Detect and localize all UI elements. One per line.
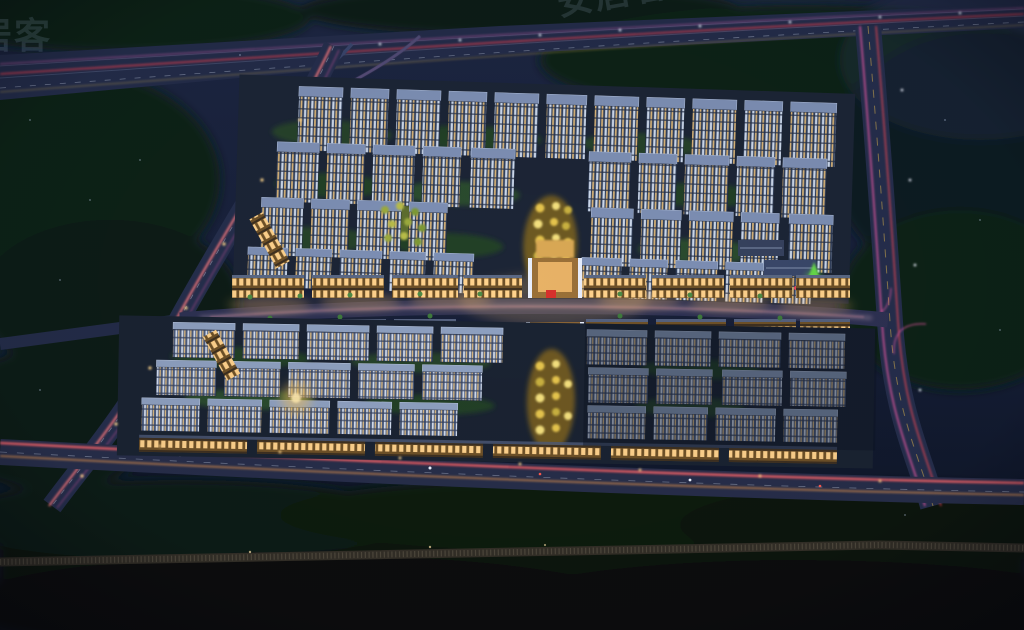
aerial-night-rendering: 安居客 安居客 <box>0 0 1024 630</box>
watermark-topleft: 安居客 <box>0 16 52 57</box>
scene-canvas: 安居客 安居客 <box>0 0 1024 630</box>
vignette <box>0 0 1024 630</box>
